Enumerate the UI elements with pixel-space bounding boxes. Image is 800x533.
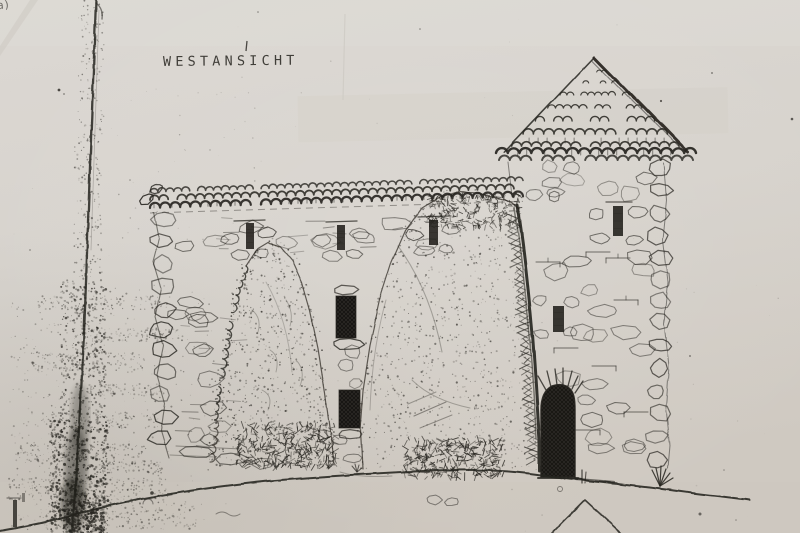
photocopy-grain [0,0,800,533]
west-elevation-drawing: WESTANSICHT a) [0,0,800,533]
scanned-drawing-sheet: WESTANSICHT a) [0,0,800,533]
